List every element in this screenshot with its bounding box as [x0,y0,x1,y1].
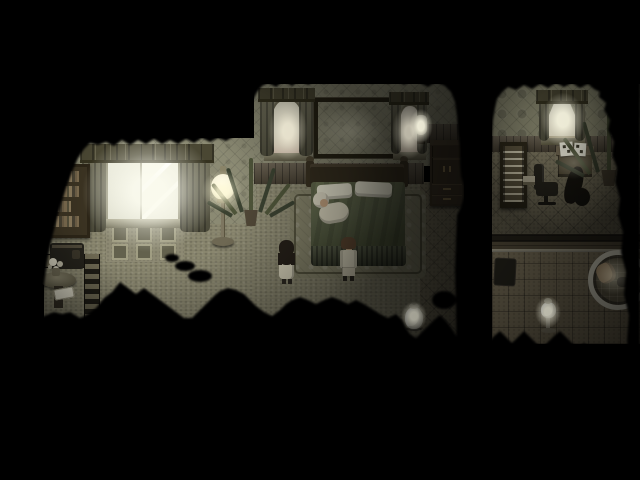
round-tub [588,250,640,310]
tub-item [617,277,629,287]
big-window-pane-right [142,157,178,219]
character-boy [338,237,360,284]
girl-foot [288,279,292,284]
bookshelf-row [51,201,71,212]
rug-motif [112,226,128,242]
flower-vase [52,268,60,276]
window-rug [106,222,184,262]
back-window-right-valance [389,92,429,105]
side-table-top-edge [52,245,82,248]
paper-glyph [563,145,566,148]
jar-body [405,307,423,329]
study-plant [584,112,634,188]
study-window-curtain-left [539,99,549,141]
bookshelf-row [51,216,79,227]
big-window-pane-left [108,157,140,219]
elder-face [320,199,328,207]
back-window-left-curtain-left [260,96,274,156]
carpet-border-vertical [84,254,100,324]
drawer-handle [443,188,451,190]
chair-base [538,202,556,205]
round-table [40,262,78,312]
boy-pants [342,267,355,276]
flower-bouquet [49,258,57,266]
wardrobe-handle [443,166,445,172]
character-girl [277,240,297,288]
rug-motif [160,226,176,242]
leaf [607,114,611,172]
side-table-item [72,250,80,259]
sconce-glass [415,115,427,135]
case-bulge [574,188,590,206]
wardrobe-drawer [432,195,462,204]
bookshelf-row [51,171,79,182]
small-box [523,176,535,185]
pedestal-base [541,328,556,333]
back-window-left-valance [258,88,315,102]
boy-hair [341,237,356,249]
bedroom-plant [232,154,270,228]
landscape-painting [314,98,400,158]
open-book [53,286,75,300]
back-window-left-pane [272,100,302,156]
pedestal-jar [541,302,556,318]
bed-pillow-right [355,181,393,198]
girl-foot [282,279,286,284]
drawer-handle [443,198,451,200]
rug-motif [112,244,128,260]
wardrobe-drawer [432,184,462,194]
bookshelf-row [51,186,79,197]
tub-towel [594,260,619,286]
wall-sconce [413,113,429,145]
big-window-valance [80,144,214,163]
boy-foot [343,276,347,281]
bookshelf [46,164,90,238]
game-viewport[interactable] [0,0,640,480]
chair-seat [536,182,558,196]
wardrobe-cornice [430,140,464,145]
floor-lamp-base [212,237,234,246]
wardrobe-handle [449,166,451,172]
tall-shelf [500,142,527,208]
paper-glyph [576,145,579,148]
paper-glyph [580,150,583,153]
plant-pot [243,210,259,226]
leaf [249,158,253,212]
girl-hair-strand [278,253,282,265]
wardrobe [430,140,464,206]
rug-motif [136,244,152,260]
rug-motif [160,244,176,260]
wardrobe-doors [432,158,462,183]
rug-motif [136,226,152,242]
jar-knob [412,301,416,305]
corridor-floor [420,182,464,342]
back-window-right-curtain-left [391,100,401,154]
wardrobe-upper-doors [432,146,462,157]
girl-hair-strand [291,253,295,265]
pedestal-lid [544,298,552,304]
boy-shirt [340,250,357,268]
tall-shelf-rows [503,146,524,202]
pedestal-lamp [538,298,558,335]
back-window-left-curtain-right [299,96,313,156]
floor-jar [403,301,425,332]
study-window-valance [536,90,588,104]
sconce-mount [417,141,425,144]
bath-mat [493,257,516,286]
big-window-sill [98,219,190,228]
plant-pot [600,170,618,186]
boy-foot [350,276,354,281]
